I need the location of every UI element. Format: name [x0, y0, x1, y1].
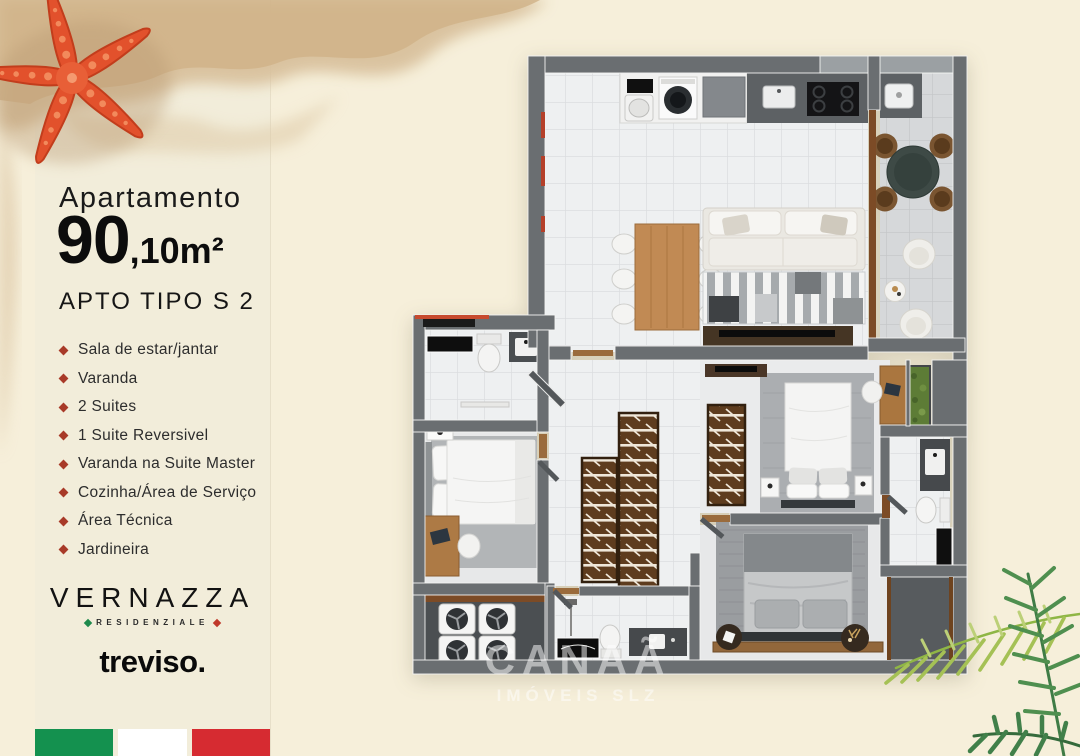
bedroom1-furniture [413, 424, 537, 576]
fridge-icon [703, 77, 745, 117]
wardrobe-icon [619, 413, 658, 587]
desk1 [425, 516, 459, 576]
cooktop-icon [807, 82, 859, 116]
toilet-icon [916, 497, 936, 523]
tv-icon [719, 330, 835, 337]
italy-flag [35, 729, 270, 756]
washing-machine-icon [659, 77, 697, 119]
sofa [703, 208, 865, 270]
flag-white-stripe [118, 729, 187, 756]
treviso-logo: treviso. [35, 644, 270, 680]
feature-item: Área Técnica [60, 512, 256, 530]
diamond-bullet-icon [59, 545, 69, 555]
vernazza-logo-name: VERNAZZA [35, 582, 270, 614]
flyer-page: { "page": { "background_color": "#f6efda… [0, 0, 1080, 756]
vernazza-logo-tagline: RESIDENZIALE [35, 618, 270, 627]
jardineira-planter [908, 366, 930, 426]
bed2 [785, 383, 851, 471]
condenser-fan-icon [479, 604, 515, 634]
diamond-bullet-icon [59, 516, 69, 526]
wardrobe-icon [582, 458, 617, 582]
red-diamond-icon [213, 618, 221, 626]
flag-red-stripe [192, 729, 270, 756]
balcony-sink-icon [885, 84, 913, 108]
desk-chair [458, 534, 480, 558]
wall-accents [415, 112, 545, 327]
tv-console [703, 326, 853, 346]
toilet-icon [600, 625, 620, 651]
kitchen-mat [627, 79, 653, 93]
shower-icon [427, 336, 473, 352]
condenser-fan-icon [439, 604, 475, 634]
wardrobe-icon [708, 405, 745, 505]
desk-chair [862, 381, 882, 403]
diamond-bullet-icon [59, 488, 69, 498]
kitchen-sink-icon [763, 86, 795, 108]
feature-item: Jardineira [60, 541, 256, 559]
living-rug [703, 272, 865, 324]
green-diamond-icon [84, 618, 92, 626]
vernazza-logo: VERNAZZA RESIDENZIALE [35, 582, 270, 627]
toilet-icon [478, 344, 500, 372]
feature-item: Cozinha/Área de Serviço [60, 484, 256, 502]
flag-green-stripe [35, 729, 113, 756]
palm-leaves-icon [878, 540, 1080, 756]
master-bedroom-furniture [713, 520, 883, 652]
